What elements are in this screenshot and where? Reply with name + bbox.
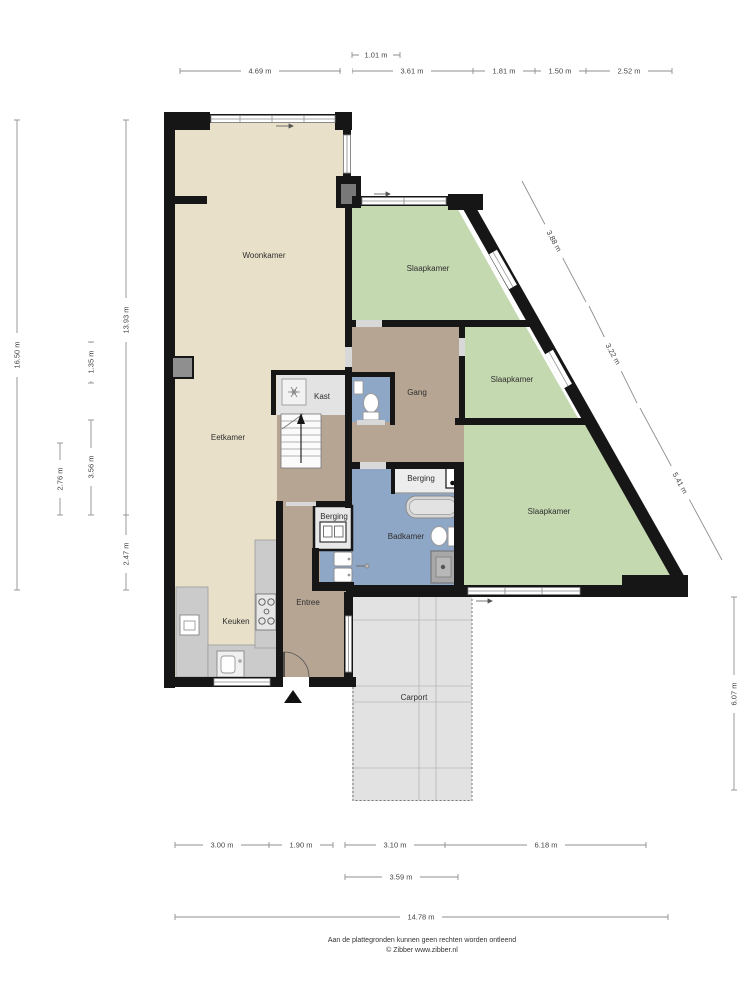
footer-copyright: © Zibber www.zibber.nl — [386, 946, 458, 954]
dim-bottom-carport: 3.59 m — [390, 873, 413, 882]
floor-plan: Woonkamer Slaapkamer Slaapkamer Slaapkam… — [0, 0, 750, 1000]
chimney-icon — [172, 357, 193, 378]
dim-left-2: 13.93 m — [122, 306, 131, 333]
room-label-gang: Gang — [407, 388, 427, 397]
room-label-eetkamer: Eetkamer — [211, 433, 246, 442]
room-label-entree: Entree — [296, 598, 320, 607]
stairs-icon — [281, 413, 321, 468]
boiler-icon — [282, 379, 306, 405]
room-label-slaapkamer-bottom: Slaapkamer — [528, 507, 571, 516]
dim-bottom-total: 14.78 m — [407, 913, 434, 922]
dim-top-1: 4.69 m — [249, 67, 272, 76]
stove-icon — [256, 594, 276, 630]
dim-top-2: 3.61 m — [401, 67, 424, 76]
dim-left-6: 2.47 m — [122, 543, 131, 566]
dim-top-5: 2.52 m — [618, 67, 641, 76]
dim-bottom-2: 1.90 m — [290, 841, 313, 850]
dim-left-3: 1.35 m — [87, 351, 96, 374]
room-label-slaapkamer-top: Slaapkamer — [407, 264, 450, 273]
room-label-badkamer: Badkamer — [388, 532, 425, 541]
dim-top-4: 1.50 m — [549, 67, 572, 76]
washer-icon — [320, 522, 346, 542]
entrance-marker-icon — [284, 690, 302, 703]
dim-bottom-3: 3.10 m — [384, 841, 407, 850]
room-label-keuken: Keuken — [222, 617, 249, 626]
footer: Aan de plattegronden kunnen geen rechten… — [328, 937, 516, 954]
kitchen-sink-icon — [217, 651, 244, 677]
wc-sink-icon — [354, 381, 363, 394]
room-label-kast: Kast — [314, 392, 331, 401]
oven-icon — [180, 615, 199, 635]
footer-disclaimer: Aan de plattegronden kunnen geen rechten… — [328, 937, 516, 944]
dim-top-small: 1.01 m — [365, 51, 388, 60]
room-label-carport: Carport — [401, 693, 428, 702]
shower-icon — [431, 551, 456, 583]
dim-bottom-4: 6.18 m — [535, 841, 558, 850]
toilet-icon — [364, 394, 379, 413]
dim-right-vertical: 6.07 m — [730, 683, 739, 706]
dim-left-5: 2.76 m — [56, 468, 65, 491]
dim-bottom-1: 3.00 m — [211, 841, 234, 850]
room-label-berging-hal: Berging — [320, 512, 348, 521]
bathtub-icon — [406, 496, 459, 518]
room-label-woonkamer: Woonkamer — [243, 251, 286, 260]
room-label-berging-badkamer: Berging — [407, 474, 435, 483]
dim-top-3: 1.81 m — [493, 67, 516, 76]
room-label-slaapkamer-mid: Slaapkamer — [491, 375, 534, 384]
floorplan-page: Woonkamer Slaapkamer Slaapkamer Slaapkam… — [0, 0, 750, 1000]
bath-toilet-icon — [431, 527, 456, 547]
dim-left-1: 16.50 m — [13, 341, 22, 368]
dim-left-4: 3.56 m — [87, 456, 96, 479]
